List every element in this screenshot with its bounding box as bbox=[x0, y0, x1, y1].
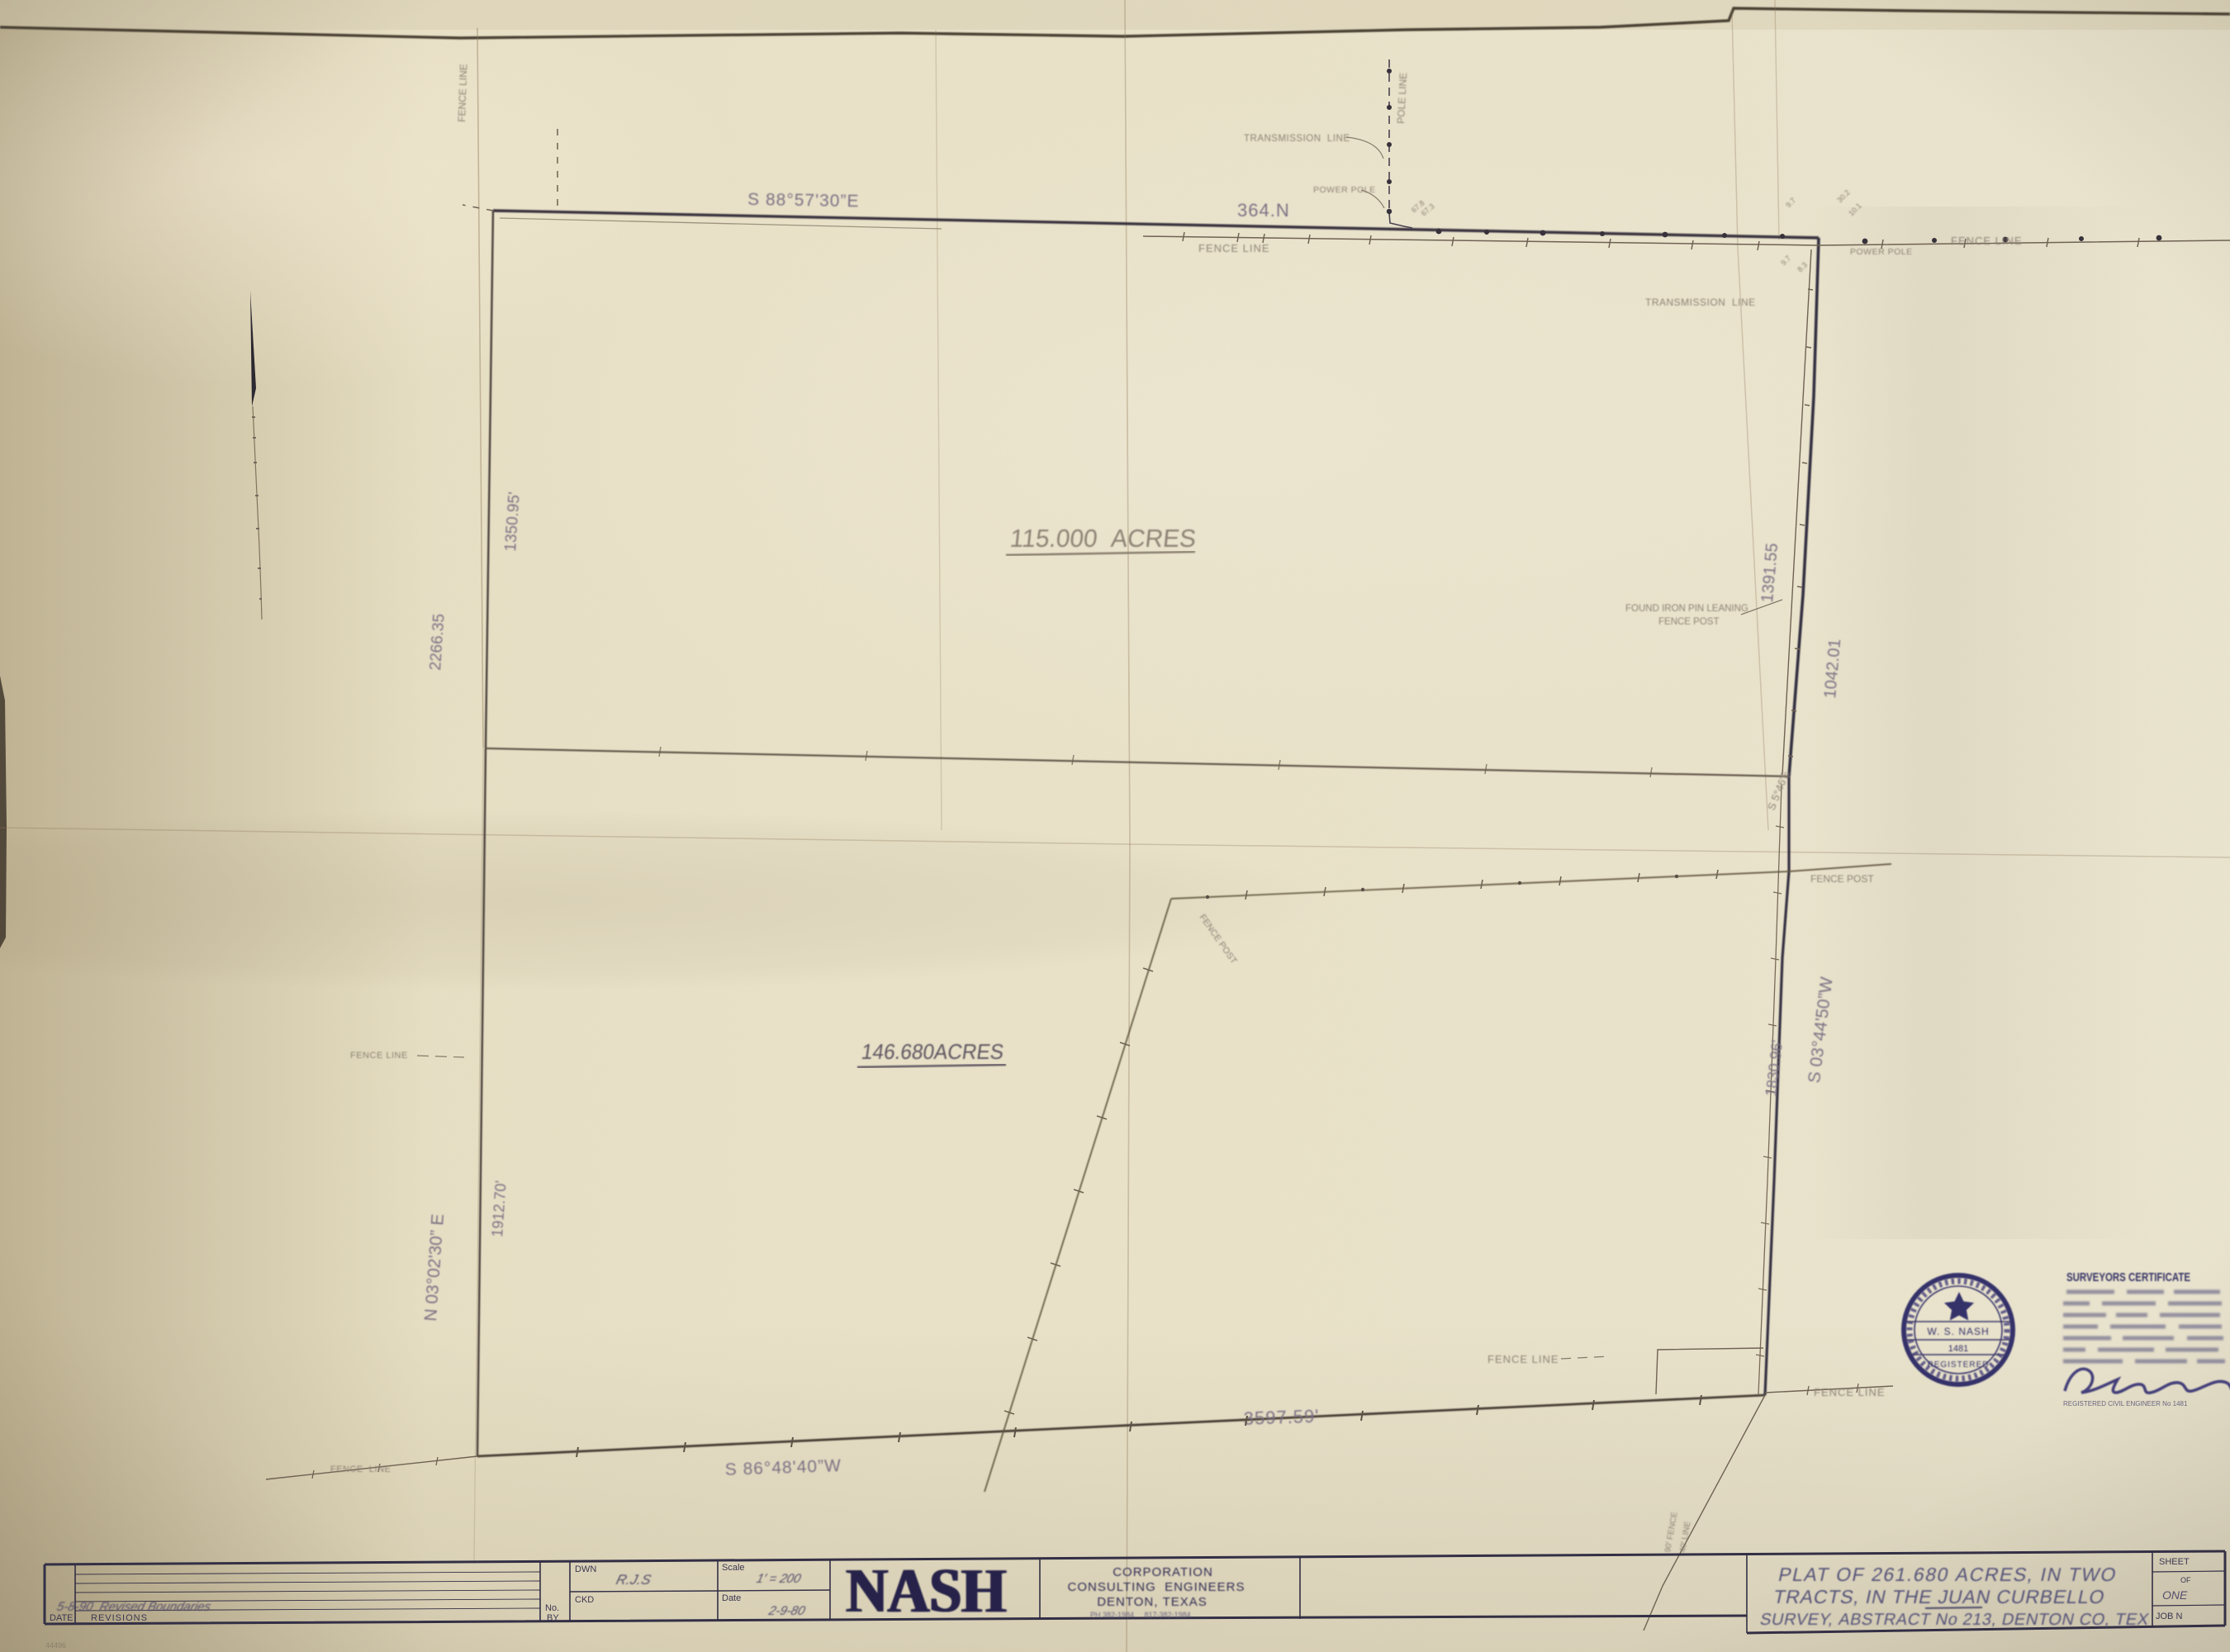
svg-text:NASH: NASH bbox=[847, 1556, 1008, 1626]
svg-text:POWER POLE: POWER POLE bbox=[1313, 185, 1376, 195]
svg-text:TRANSMISSION LINE: TRANSMISSION LINE bbox=[1244, 134, 1350, 144]
svg-text:FENCE LINE: FENCE LINE bbox=[456, 64, 469, 122]
svg-text:DWN: DWN bbox=[575, 1564, 596, 1574]
svg-text:REGISTERED CIVIL ENGINEER No 1: REGISTERED CIVIL ENGINEER No 1481 bbox=[2063, 1400, 2188, 1408]
svg-text:S 88°57'30”E: S 88°57'30”E bbox=[747, 190, 860, 211]
svg-text:CORPORATION: CORPORATION bbox=[1113, 1565, 1213, 1579]
svg-text:S 86°48'40”W: S 86°48'40”W bbox=[724, 1456, 842, 1479]
svg-text:No.: No. bbox=[545, 1603, 559, 1613]
svg-text:5-8-90 Revised Boundaries: 5-8-90 Revised Boundaries bbox=[55, 1600, 212, 1614]
svg-text:PLAT OF 261.680 ACRES, IN TWO: PLAT OF 261.680 ACRES, IN TWO bbox=[1777, 1564, 2118, 1585]
svg-text:ONE: ONE bbox=[2162, 1588, 2188, 1602]
svg-text:44496: 44496 bbox=[45, 1641, 66, 1650]
svg-text:Scale: Scale bbox=[722, 1563, 745, 1573]
svg-text:REVISIONS: REVISIONS bbox=[91, 1613, 148, 1623]
svg-text:PH 382-1984 817-382-1984: PH 382-1984 817-382-1984 bbox=[1090, 1611, 1191, 1619]
svg-text:CONSULTING ENGINEERS: CONSULTING ENGINEERS bbox=[1068, 1580, 1245, 1594]
svg-text:Date: Date bbox=[722, 1593, 741, 1603]
svg-text:BY: BY bbox=[547, 1613, 559, 1623]
svg-text:DATE: DATE bbox=[50, 1613, 74, 1623]
svg-text:OF: OF bbox=[2180, 1576, 2191, 1584]
svg-text:2-9-80: 2-9-80 bbox=[766, 1604, 807, 1618]
svg-text:FENCE POST: FENCE POST bbox=[1810, 873, 1874, 885]
svg-text:FENCE LINE: FENCE LINE bbox=[1951, 235, 2023, 247]
svg-text:SHEET: SHEET bbox=[2159, 1557, 2190, 1567]
svg-text:364.N: 364.N bbox=[1237, 200, 1290, 221]
svg-text:R.J.S: R.J.S bbox=[614, 1571, 653, 1588]
svg-text:POWER POLE: POWER POLE bbox=[1850, 247, 1913, 257]
svg-text:1481: 1481 bbox=[1948, 1344, 1968, 1354]
svg-text:115.000 ACRES: 115.000 ACRES bbox=[1008, 525, 1197, 553]
svg-text:FOUND IRON PIN LEANING: FOUND IRON PIN LEANING bbox=[1625, 604, 1748, 614]
svg-text:FENCE LINE: FENCE LINE bbox=[330, 1464, 391, 1474]
svg-text:1′ = 200: 1′ = 200 bbox=[755, 1572, 803, 1586]
svg-text:FENCE LINE: FENCE LINE bbox=[1198, 242, 1270, 254]
svg-text:FENCE POST: FENCE POST bbox=[1658, 617, 1719, 627]
svg-text:SURVEY, ABSTRACT No 213, DENTO: SURVEY, ABSTRACT No 213, DENTON CO, TEX bbox=[1758, 1611, 2151, 1629]
svg-text:DENTON, TEXAS: DENTON, TEXAS bbox=[1097, 1595, 1208, 1609]
svg-text:FENCE LINE: FENCE LINE bbox=[1487, 1353, 1559, 1365]
svg-text:FENCE LINE: FENCE LINE bbox=[1814, 1386, 1886, 1398]
svg-text:REGISTERED: REGISTERED bbox=[1927, 1360, 1989, 1370]
svg-text:CKD: CKD bbox=[575, 1595, 594, 1605]
svg-text:TRACTS, IN THE JUAN CURBELLO: TRACTS, IN THE JUAN CURBELLO bbox=[1772, 1586, 2106, 1607]
svg-text:3597.59': 3597.59' bbox=[1243, 1406, 1320, 1429]
svg-text:JOB N: JOB N bbox=[2156, 1612, 2182, 1621]
svg-text:W. S. NASH: W. S. NASH bbox=[1927, 1326, 1989, 1337]
svg-text:SURVEYORS CERTIFICATE: SURVEYORS CERTIFICATE bbox=[2066, 1270, 2190, 1284]
svg-text:146.680ACRES: 146.680ACRES bbox=[860, 1039, 1005, 1064]
svg-text:FENCE LINE: FENCE LINE bbox=[350, 1051, 408, 1061]
svg-text:TRANSMISSION LINE: TRANSMISSION LINE bbox=[1645, 297, 1756, 308]
